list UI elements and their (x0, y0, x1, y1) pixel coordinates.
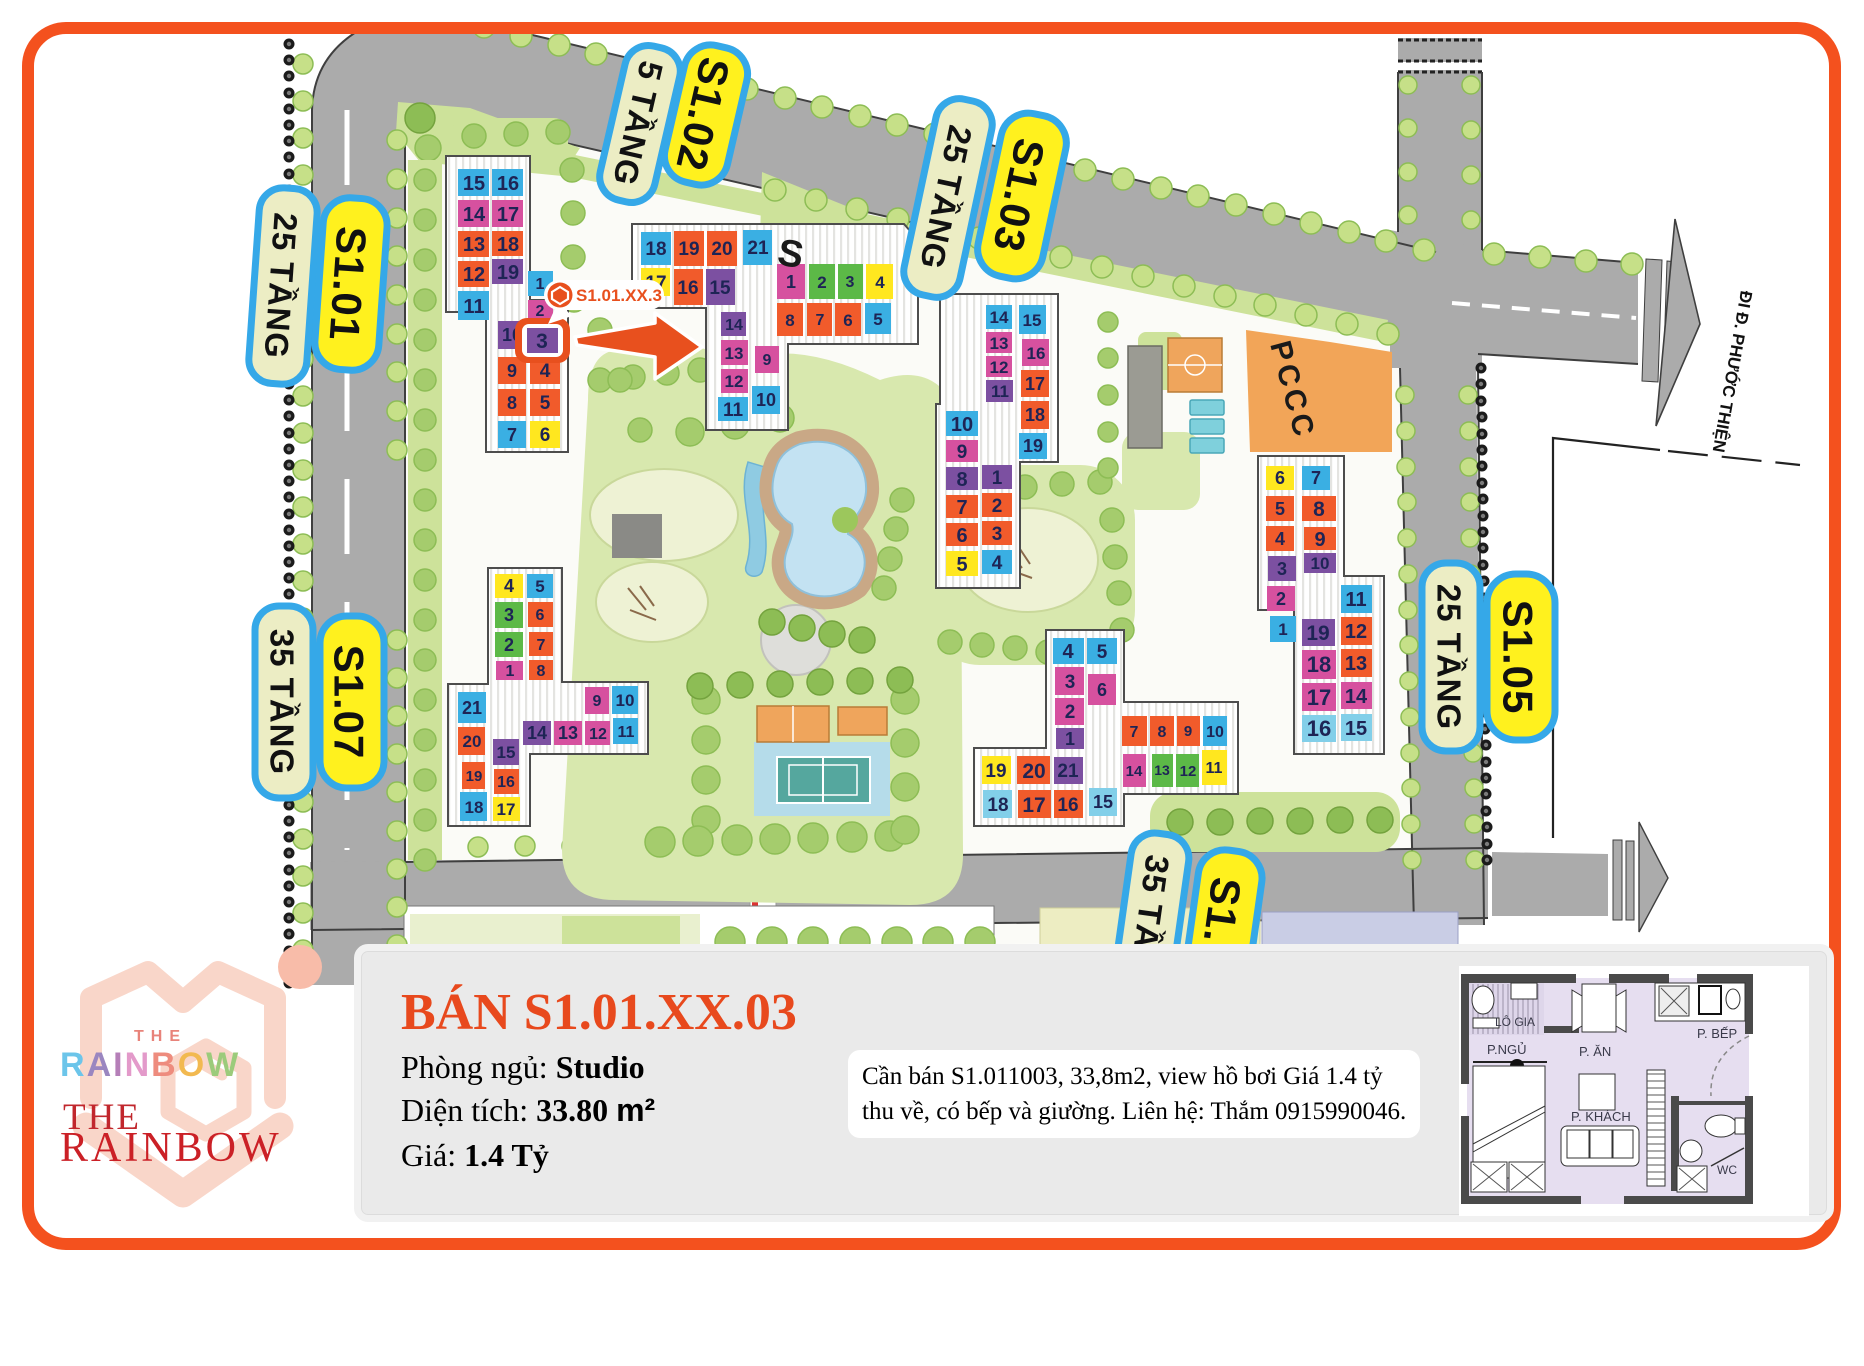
svg-text:15: 15 (463, 173, 485, 195)
svg-text:16: 16 (1057, 795, 1078, 816)
svg-text:1: 1 (536, 276, 545, 293)
svg-text:4: 4 (504, 576, 514, 596)
svg-text:4: 4 (540, 361, 551, 382)
svg-text:14: 14 (527, 723, 547, 743)
svg-text:S1.07: S1.07 (326, 645, 373, 760)
svg-text:3: 3 (1065, 672, 1076, 693)
svg-text:7: 7 (816, 312, 825, 329)
svg-text:3: 3 (846, 274, 855, 291)
svg-text:15: 15 (1345, 718, 1367, 740)
svg-text:3: 3 (504, 605, 514, 625)
svg-text:15: 15 (497, 743, 516, 762)
svg-text:14: 14 (725, 317, 743, 334)
svg-text:15: 15 (1023, 311, 1042, 330)
svg-text:P.NGỦ: P.NGỦ (1487, 1042, 1527, 1057)
svg-text:10: 10 (1206, 724, 1224, 741)
svg-text:6: 6 (540, 425, 551, 446)
svg-text:1: 1 (506, 663, 515, 680)
svg-text:16: 16 (497, 774, 515, 791)
svg-text:11: 11 (1206, 760, 1223, 777)
svg-text:6: 6 (956, 525, 967, 547)
svg-text:10: 10 (1311, 554, 1330, 573)
svg-text:9: 9 (507, 361, 517, 381)
svg-text:5: 5 (956, 554, 967, 576)
svg-text:18: 18 (497, 234, 519, 256)
svg-text:11: 11 (1345, 589, 1366, 611)
svg-text:9: 9 (763, 352, 772, 369)
svg-text:8: 8 (1158, 724, 1167, 741)
svg-text:8: 8 (785, 311, 794, 330)
svg-text:18: 18 (987, 795, 1008, 816)
svg-text:8: 8 (537, 663, 546, 680)
svg-text:3: 3 (992, 524, 1003, 545)
svg-text:P. ĂN: P. ĂN (1579, 1044, 1611, 1059)
svg-text:1: 1 (1278, 620, 1287, 639)
svg-text:19: 19 (1023, 436, 1043, 456)
svg-text:11: 11 (723, 400, 744, 421)
svg-text:25 TẦNG: 25 TẦNG (1431, 584, 1468, 730)
svg-text:2: 2 (817, 273, 826, 292)
svg-text:14: 14 (1126, 763, 1143, 780)
svg-text:13: 13 (1154, 762, 1170, 778)
svg-text:5: 5 (1275, 499, 1285, 519)
svg-text:S1.01.XX.3: S1.01.XX.3 (576, 286, 662, 305)
svg-text:12: 12 (990, 358, 1009, 377)
svg-text:35 TẦNG: 35 TẦNG (264, 629, 301, 775)
svg-text:P. KHÁCH: P. KHÁCH (1571, 1109, 1631, 1124)
svg-text:3: 3 (536, 330, 548, 353)
svg-text:19: 19 (985, 761, 1006, 782)
svg-text:19: 19 (466, 768, 483, 785)
svg-text:WC: WC (1717, 1163, 1737, 1177)
svg-text:8: 8 (1313, 498, 1325, 521)
svg-text:11: 11 (618, 724, 635, 741)
svg-text:6: 6 (1275, 468, 1285, 488)
svg-text:11: 11 (991, 382, 1009, 401)
svg-text:21: 21 (462, 698, 482, 718)
svg-text:2: 2 (992, 496, 1003, 517)
svg-text:1: 1 (1065, 729, 1075, 749)
svg-text:11: 11 (463, 296, 484, 318)
svg-text:12: 12 (589, 726, 607, 743)
svg-text:14: 14 (990, 308, 1009, 327)
svg-text:17: 17 (1022, 794, 1045, 817)
svg-text:17: 17 (497, 800, 516, 819)
svg-text:1: 1 (992, 468, 1003, 489)
svg-text:4: 4 (1275, 529, 1285, 549)
svg-text:12: 12 (463, 264, 485, 286)
svg-text:16: 16 (1027, 344, 1046, 363)
svg-text:6: 6 (843, 311, 852, 330)
svg-text:7: 7 (507, 425, 517, 445)
svg-text:18: 18 (1025, 405, 1045, 425)
svg-text:13: 13 (725, 344, 744, 363)
svg-text:19: 19 (497, 262, 519, 284)
svg-text:15: 15 (1093, 792, 1113, 812)
svg-text:9: 9 (1314, 529, 1325, 551)
svg-text:20: 20 (1022, 760, 1045, 783)
svg-text:12: 12 (725, 372, 744, 391)
svg-text:8: 8 (956, 469, 967, 491)
svg-text:13: 13 (463, 234, 485, 256)
svg-text:19: 19 (1306, 622, 1329, 645)
svg-text:6: 6 (536, 607, 545, 624)
svg-text:3: 3 (1277, 559, 1287, 579)
svg-text:18: 18 (465, 798, 484, 817)
svg-text:13: 13 (558, 723, 578, 743)
svg-text:4: 4 (1062, 641, 1074, 663)
svg-text:12: 12 (1180, 763, 1197, 780)
svg-text:10: 10 (756, 390, 776, 410)
svg-text:14: 14 (463, 204, 486, 226)
svg-text:7: 7 (1130, 724, 1139, 741)
svg-text:9: 9 (593, 693, 602, 710)
svg-text:S1.05: S1.05 (1495, 600, 1542, 715)
svg-text:5: 5 (873, 310, 882, 329)
svg-text:7: 7 (537, 637, 546, 654)
svg-text:13: 13 (1345, 653, 1367, 675)
svg-text:10: 10 (951, 414, 973, 436)
svg-text:20: 20 (711, 239, 732, 260)
svg-text:15: 15 (709, 278, 731, 299)
svg-text:LÔ GIA: LÔ GIA (1495, 1014, 1535, 1029)
svg-text:21: 21 (747, 238, 769, 259)
svg-text:S1.01: S1.01 (321, 225, 376, 343)
svg-text:19: 19 (678, 239, 699, 260)
svg-text:5: 5 (540, 393, 551, 414)
svg-text:16: 16 (497, 173, 519, 195)
svg-text:14: 14 (1345, 686, 1368, 708)
svg-text:9: 9 (957, 442, 968, 463)
svg-text:4: 4 (992, 553, 1003, 574)
svg-text:ĐI Đ. PHƯỚC THIỆN: ĐI Đ. PHƯỚC THIỆN (1709, 289, 1756, 453)
svg-text:2: 2 (536, 303, 545, 320)
svg-text:20: 20 (463, 732, 482, 751)
svg-text:10: 10 (616, 691, 635, 710)
svg-text:2: 2 (1065, 702, 1076, 723)
svg-text:2: 2 (1276, 589, 1286, 609)
svg-text:7: 7 (956, 497, 967, 519)
svg-text:16: 16 (677, 278, 698, 299)
svg-text:8: 8 (507, 393, 517, 413)
svg-text:16: 16 (1307, 716, 1331, 741)
svg-text:13: 13 (990, 334, 1009, 353)
svg-text:5: 5 (1097, 642, 1108, 663)
svg-text:21: 21 (1057, 761, 1079, 782)
svg-text:P. BẾP: P. BẾP (1697, 1026, 1737, 1041)
svg-text:7: 7 (1311, 468, 1321, 488)
svg-text:5: 5 (535, 577, 544, 596)
svg-text:2: 2 (504, 635, 514, 655)
svg-text:18: 18 (645, 239, 666, 260)
svg-text:4: 4 (875, 273, 885, 292)
svg-text:18: 18 (1307, 652, 1331, 677)
svg-text:9: 9 (1184, 723, 1192, 740)
svg-text:17: 17 (1307, 685, 1331, 710)
svg-text:6: 6 (1097, 680, 1107, 700)
svg-text:17: 17 (497, 204, 519, 226)
svg-text:17: 17 (1025, 374, 1045, 394)
svg-text:12: 12 (1345, 621, 1367, 643)
